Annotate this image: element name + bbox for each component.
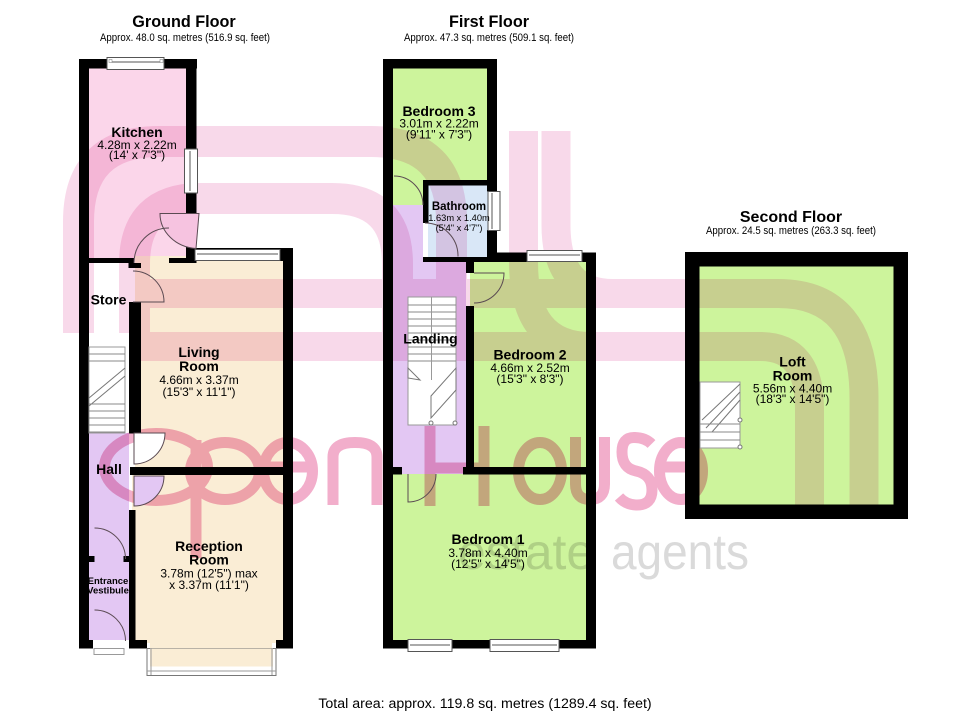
svg-text:Approx. 48.0 sq. metres (516.9: Approx. 48.0 sq. metres (516.9 sq. feet) bbox=[100, 32, 270, 44]
svg-text:Second Floor: Second Floor bbox=[740, 209, 842, 226]
svg-text:First Floor: First Floor bbox=[449, 13, 530, 31]
svg-text:(15'3" x 8'3"): (15'3" x 8'3") bbox=[496, 372, 563, 386]
svg-text:Bedroom 1: Bedroom 1 bbox=[451, 531, 524, 547]
svg-text:Hall: Hall bbox=[96, 461, 122, 477]
svg-text:(12'5" x 14'5"): (12'5" x 14'5") bbox=[451, 557, 525, 571]
svg-text:Room: Room bbox=[179, 358, 219, 374]
svg-text:(9'11" x 7'3"): (9'11" x 7'3") bbox=[406, 128, 472, 142]
svg-text:Landing: Landing bbox=[403, 331, 457, 347]
svg-text:(14' x 7'3"): (14' x 7'3") bbox=[109, 148, 165, 162]
svg-text:(18'3" x 14'5"): (18'3" x 14'5") bbox=[756, 392, 830, 406]
svg-text:Store: Store bbox=[91, 292, 127, 308]
svg-text:(15'3" x 11'1"): (15'3" x 11'1") bbox=[163, 385, 236, 399]
svg-text:Ground Floor: Ground Floor bbox=[132, 13, 236, 31]
svg-text:agents: agents bbox=[611, 524, 749, 580]
svg-text:1.63m x 1.40m: 1.63m x 1.40m bbox=[428, 213, 490, 223]
svg-text:Vestibule: Vestibule bbox=[87, 586, 129, 597]
svg-text:Bathroom: Bathroom bbox=[432, 201, 486, 213]
svg-text:(5'4" x 4'7"): (5'4" x 4'7") bbox=[436, 223, 483, 233]
svg-text:Approx. 47.3 sq. metres (509.1: Approx. 47.3 sq. metres (509.1 sq. feet) bbox=[404, 32, 574, 44]
svg-text:x 3.37m (11'1"): x 3.37m (11'1") bbox=[169, 578, 249, 592]
svg-text:Room: Room bbox=[189, 552, 229, 568]
svg-text:Total area: approx. 119.8 sq.: Total area: approx. 119.8 sq. metres (12… bbox=[318, 696, 651, 712]
svg-text:Approx. 24.5 sq. metres (263.3: Approx. 24.5 sq. metres (263.3 sq. feet) bbox=[706, 225, 876, 237]
